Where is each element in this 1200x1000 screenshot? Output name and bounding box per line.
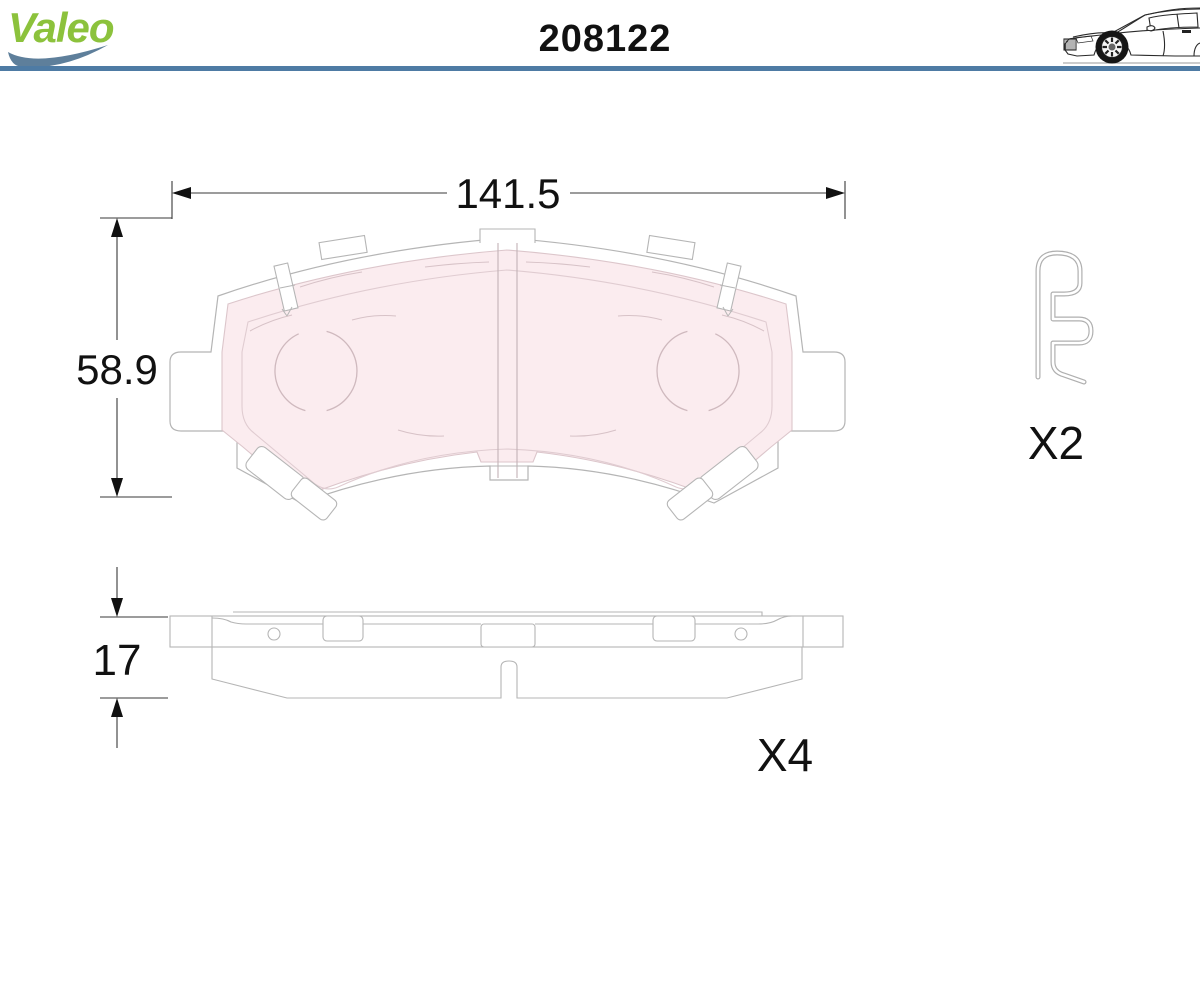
clip-quantity-label: X2 (1028, 417, 1084, 469)
brake-pad-side-view (170, 612, 843, 698)
width-dimension-value: 141.5 (455, 170, 560, 217)
height-dimension: 58.9 (76, 218, 172, 497)
thickness-dimension-value: 17 (93, 636, 142, 685)
pad-quantity-label: X4 (757, 729, 813, 781)
technical-drawing: 141.5 58.9 17 X2 X4 (0, 0, 1200, 1000)
thickness-dimension: 17 (93, 567, 168, 748)
width-dimension: 141.5 (172, 170, 845, 219)
height-dimension-value: 58.9 (76, 346, 158, 393)
brake-pad-front-view (170, 229, 845, 522)
pad-spring-clip-icon (1038, 253, 1091, 382)
catalog-page: Valeo 208122 (0, 0, 1200, 1000)
